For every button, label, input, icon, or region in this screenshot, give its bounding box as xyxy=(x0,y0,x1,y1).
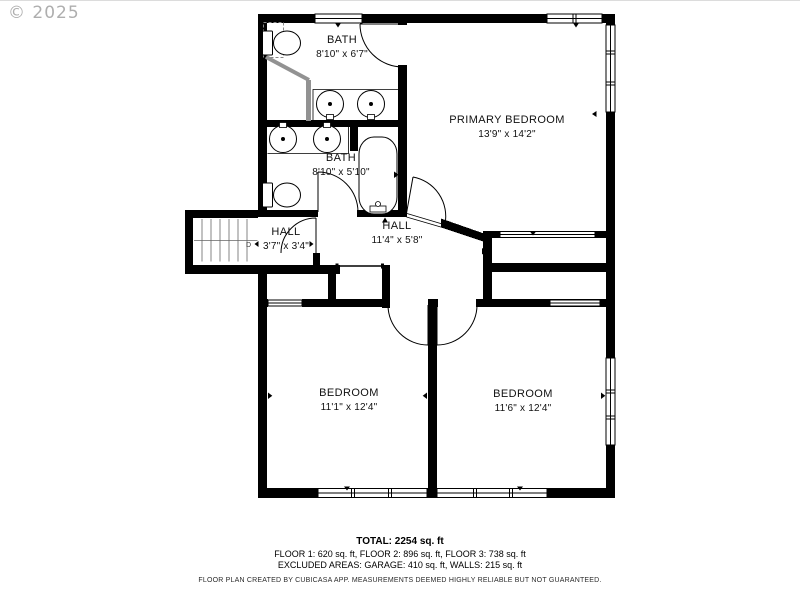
room-dimensions: 11'4" x 5'8" xyxy=(372,236,423,246)
window-primary-right xyxy=(606,25,615,112)
room-dimensions: 13'9" x 14'2" xyxy=(449,130,565,140)
windows xyxy=(268,14,615,498)
room-name: HALL xyxy=(263,227,309,238)
floor-plan-drawing: D xyxy=(0,0,800,600)
closet-opening xyxy=(336,264,385,269)
window-left-interior xyxy=(268,300,302,306)
window-bath-top xyxy=(315,14,362,23)
window-bedroom-left-bottom xyxy=(318,489,427,498)
walls xyxy=(185,14,615,498)
toilet-icon xyxy=(263,183,301,207)
staircase: D xyxy=(194,219,258,262)
floor-areas-text: FLOOR 1: 620 sq. ft, FLOOR 2: 896 sq. ft… xyxy=(0,550,800,559)
room-dimensions: 8'10" x 6'7" xyxy=(316,50,368,60)
room-dimensions: 3'7" x 3'4" xyxy=(263,242,309,252)
room-dimensions: 11'1" x 12'4" xyxy=(319,403,379,413)
room-label-hall-center: HALL 11'4" x 5'8" xyxy=(372,221,423,246)
door-bath-middle xyxy=(318,172,358,212)
window-primary-bottom xyxy=(500,232,595,238)
room-label-bath-middle: BATH 8'10" x 5'10" xyxy=(312,153,369,178)
room-label-bedroom-right: BEDROOM 11'6" x 12'4" xyxy=(493,389,553,414)
door-bedroom-right xyxy=(437,305,477,345)
excluded-areas-text: EXCLUDED AREAS: GARAGE: 410 sq. ft, WALL… xyxy=(0,561,800,570)
room-label-bedroom-left: BEDROOM 11'1" x 12'4" xyxy=(319,388,379,413)
room-name: BATH xyxy=(312,153,369,164)
room-name: BEDROOM xyxy=(493,389,553,400)
shower-icon xyxy=(266,57,311,121)
room-label-primary-bedroom: PRIMARY BEDROOM 13'9" x 14'2" xyxy=(449,115,565,140)
disclaimer-text: FLOOR PLAN CREATED BY CUBICASA APP. MEAS… xyxy=(0,577,800,584)
room-name: BEDROOM xyxy=(319,388,379,399)
room-dimensions: 11'6" x 12'4" xyxy=(493,404,553,414)
window-primary-top xyxy=(547,14,602,23)
door-primary-bedroom xyxy=(406,177,446,228)
total-area-text: TOTAL: 2254 sq. ft xyxy=(0,537,800,547)
room-dimensions: 8'10" x 5'10" xyxy=(312,168,369,178)
room-name: HALL xyxy=(372,221,423,232)
window-bedroom-right-side xyxy=(606,358,615,445)
window-strip-bottom xyxy=(550,300,600,306)
room-label-hall-left: HALL 3'7" x 3'4" xyxy=(263,227,309,252)
room-name: BATH xyxy=(316,35,368,46)
stairs-direction-label: D xyxy=(246,242,251,249)
room-label-bath-top: BATH 8'10" x 6'7" xyxy=(316,35,368,60)
toilet-icon xyxy=(263,31,301,55)
sink-icon xyxy=(317,91,385,120)
door-bedroom-left xyxy=(388,305,428,345)
room-name: PRIMARY BEDROOM xyxy=(449,115,565,126)
window-bedroom-right-bottom xyxy=(437,489,547,498)
floor-plan-page: © 2025 xyxy=(0,0,800,600)
